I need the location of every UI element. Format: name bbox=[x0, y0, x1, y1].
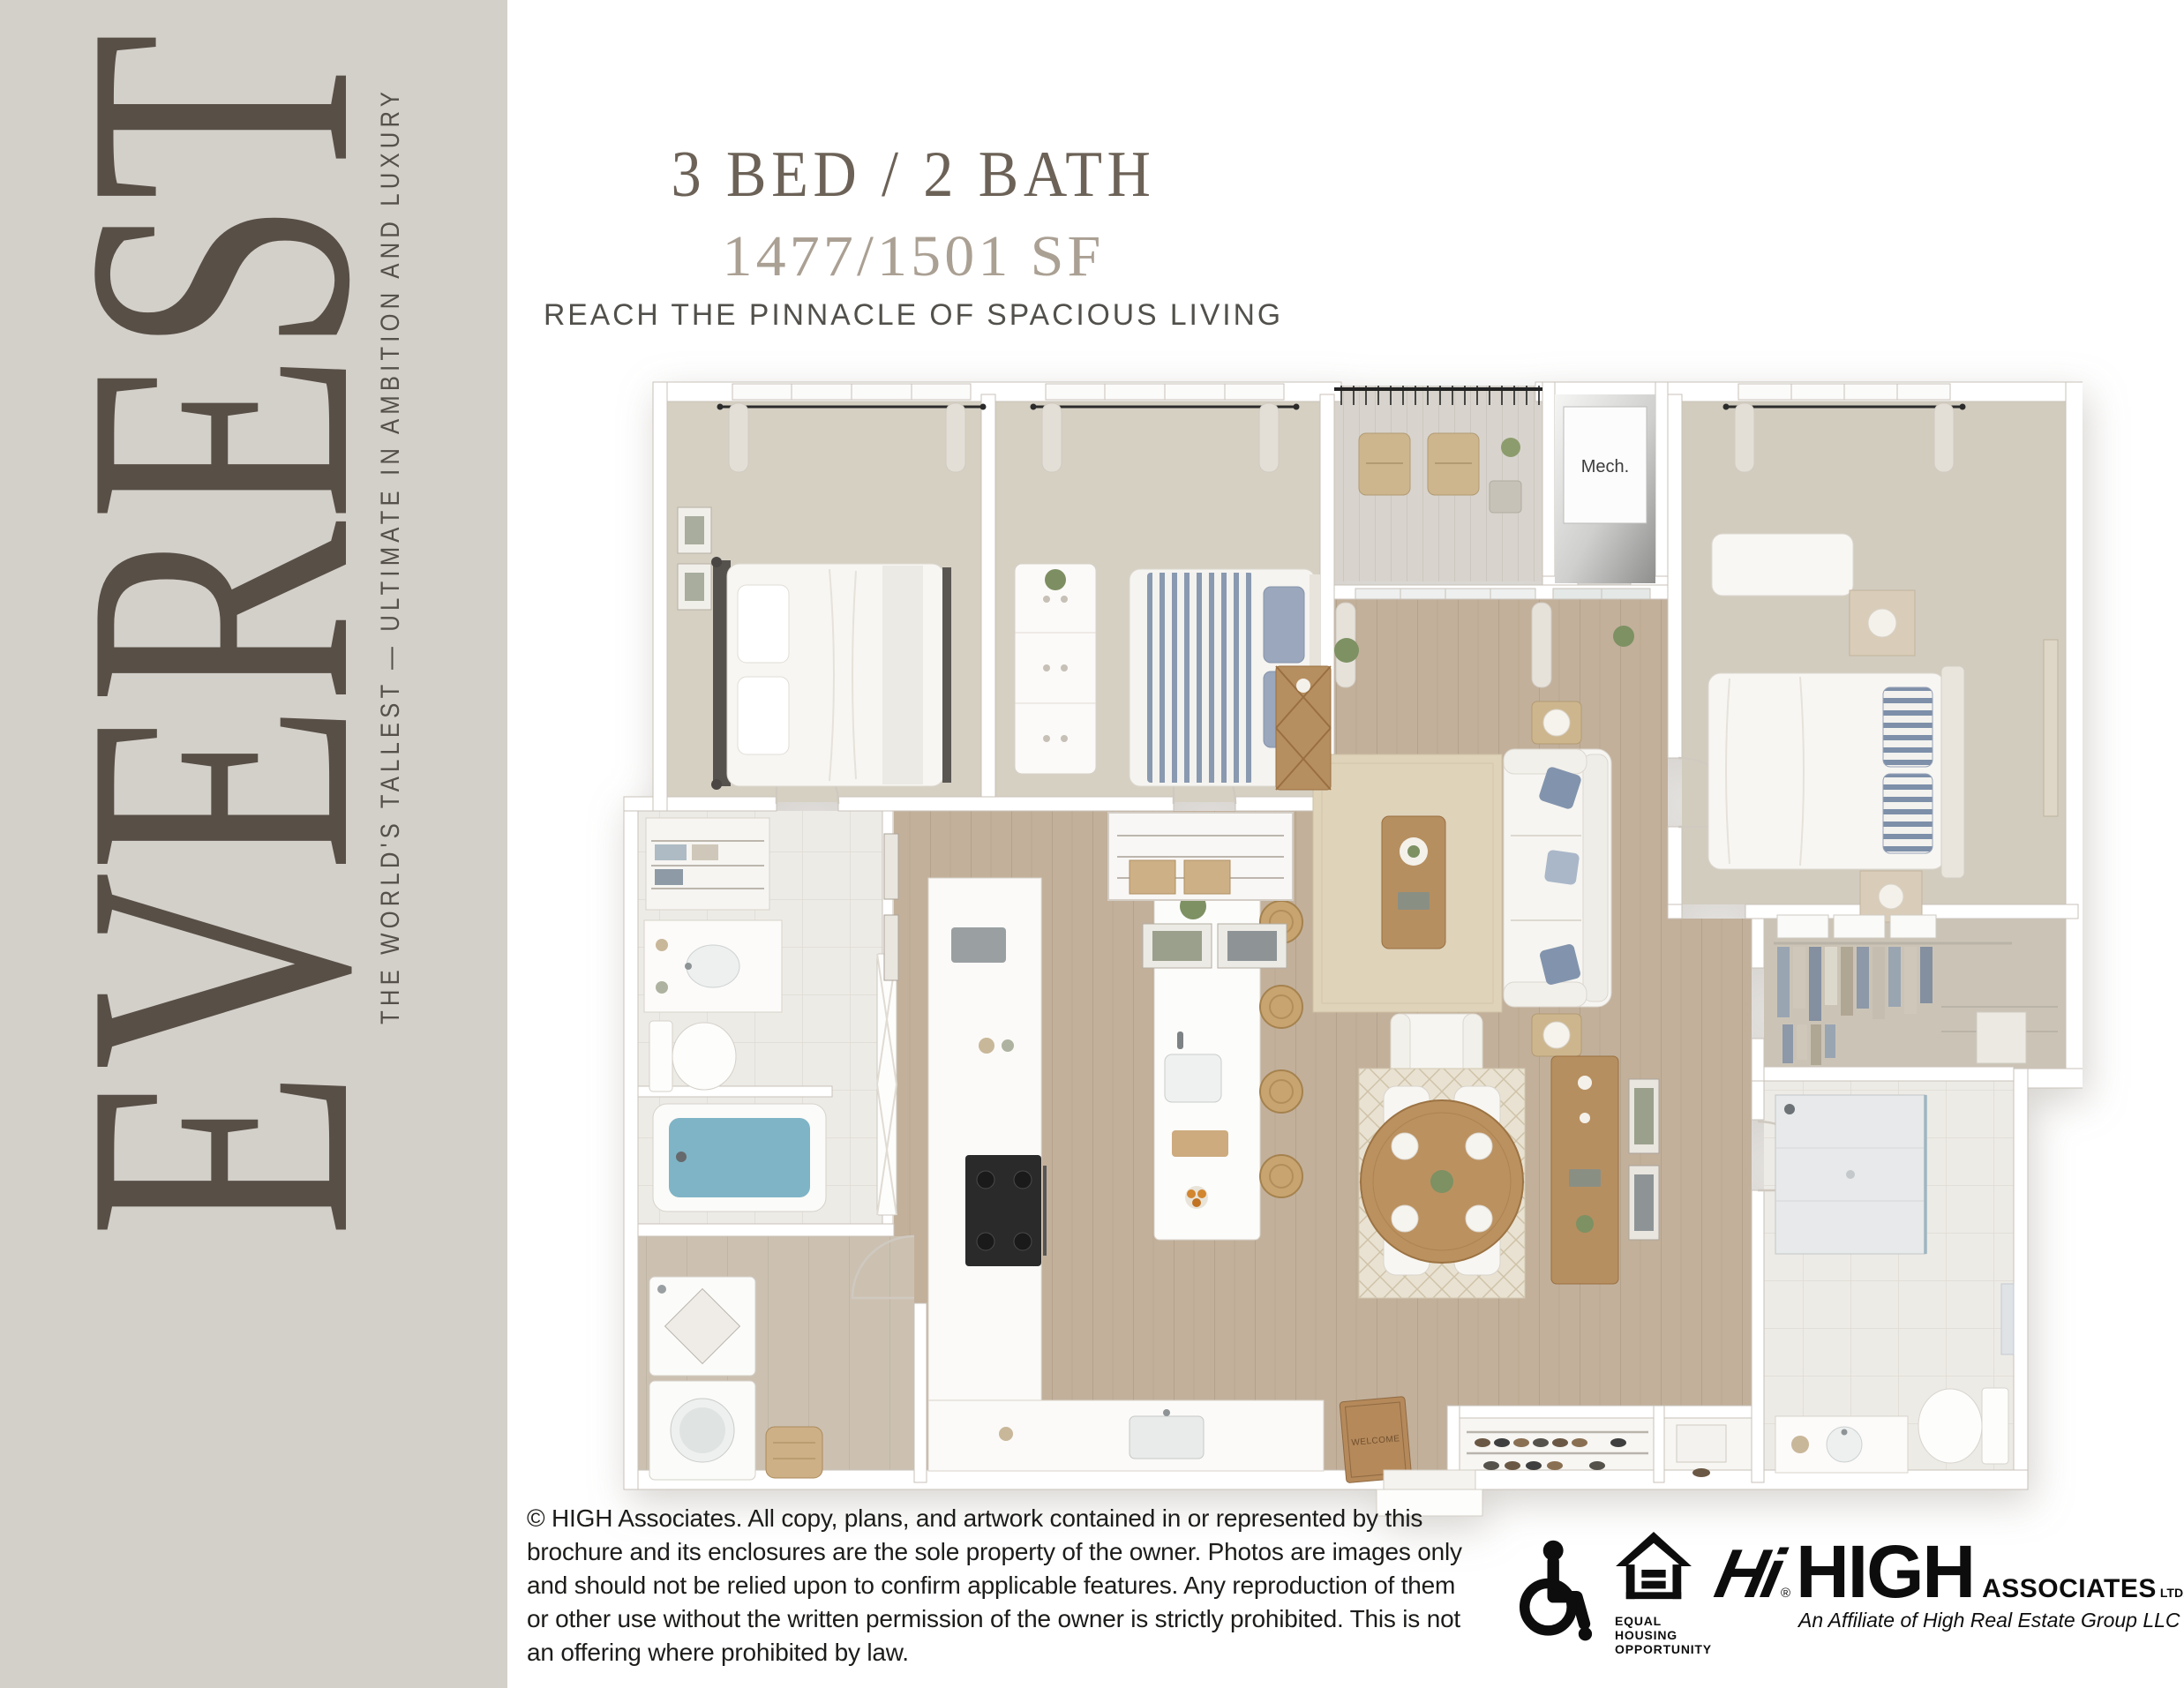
window-bench bbox=[1712, 534, 1853, 596]
shower-head bbox=[1784, 1104, 1795, 1114]
vanity bbox=[1775, 1416, 1908, 1473]
basket bbox=[1130, 860, 1175, 894]
copyright-line: and should not be relied upon to confirm… bbox=[527, 1569, 1520, 1602]
registered-mark: ® bbox=[1781, 1586, 1790, 1601]
pantry-shelves bbox=[1108, 813, 1293, 900]
counter-left bbox=[928, 878, 1045, 1407]
balcony-plant bbox=[1501, 438, 1520, 457]
hall-art bbox=[884, 915, 898, 980]
bathtub bbox=[653, 1104, 826, 1212]
sink bbox=[1130, 1416, 1204, 1459]
lamp bbox=[1543, 709, 1570, 736]
closet-dresser bbox=[1977, 1012, 2026, 1063]
copyright-line: © HIGH Associates. All copy, plans, and … bbox=[527, 1502, 1520, 1535]
wall-sign bbox=[2044, 640, 2058, 816]
sidebar-art: EVEREST THE WORLD'S TALLEST — ULTIMATE I… bbox=[0, 0, 507, 1688]
accessibility-icon bbox=[1520, 1539, 1594, 1645]
plant bbox=[1613, 626, 1634, 647]
brand-name: EVEREST bbox=[9, 34, 429, 1238]
high-associates-logo: Hi ® HIGH ASSOCIATES LTD. An Affiliate o… bbox=[1717, 1539, 2184, 1632]
throw-pillow bbox=[1544, 850, 1580, 886]
balcony-table bbox=[1490, 481, 1521, 513]
copyright-line: an offering where prohibited by law. bbox=[527, 1636, 1520, 1669]
high-name: HIGH bbox=[1796, 1539, 1974, 1606]
shower bbox=[1775, 1095, 1925, 1254]
mech-label: Mech. bbox=[1581, 457, 1629, 476]
console-table bbox=[1276, 666, 1331, 790]
storage-box bbox=[1677, 1425, 1726, 1462]
sofa bbox=[1504, 749, 1611, 1007]
high-affiliate-tagline: An Affiliate of High Real Estate Group L… bbox=[1798, 1609, 2184, 1632]
bed bbox=[1708, 666, 1964, 878]
small-appliance bbox=[951, 927, 1006, 963]
faucet bbox=[1177, 1032, 1183, 1049]
sidebar: EVEREST THE WORLD'S TALLEST — ULTIMATE I… bbox=[0, 0, 507, 1688]
laundry-basket bbox=[766, 1427, 822, 1478]
towel bbox=[2001, 1284, 2014, 1354]
equal-housing-line2: OPPORTUNITY bbox=[1615, 1642, 1712, 1656]
buffet-console bbox=[1551, 1056, 1618, 1284]
dresser bbox=[1015, 564, 1096, 774]
dryer bbox=[649, 1381, 755, 1480]
stove bbox=[965, 1155, 1045, 1266]
equal-housing-line1: EQUAL HOUSING bbox=[1615, 1614, 1712, 1642]
header-tagline: REACH THE PINNACLE OF SPACIOUS LIVING bbox=[544, 298, 1283, 332]
tub-faucet bbox=[676, 1152, 687, 1162]
basket bbox=[1184, 860, 1230, 894]
brand-tagline: THE WORLD'S TALLEST — ULTIMATE IN AMBITI… bbox=[376, 87, 405, 1024]
entry-door bbox=[1384, 1470, 1475, 1489]
lamp bbox=[1543, 1022, 1570, 1048]
hall-art bbox=[884, 834, 898, 899]
dining-table bbox=[1361, 1100, 1523, 1263]
dining bbox=[1359, 1056, 1659, 1298]
equal-housing-icon bbox=[1615, 1532, 1692, 1604]
copyright-line: brochure and its enclosures are the sole… bbox=[527, 1535, 1520, 1569]
island bbox=[1154, 866, 1260, 1240]
lamp bbox=[1868, 609, 1896, 637]
linen-shelves bbox=[646, 818, 769, 910]
high-ltd: LTD. bbox=[2160, 1586, 2184, 1600]
high-associates: ASSOCIATES bbox=[1982, 1574, 2157, 1604]
toilet bbox=[1918, 1388, 2008, 1464]
brochure-page: EVEREST THE WORLD'S TALLEST — ULTIMATE I… bbox=[0, 0, 2184, 1688]
coffee-table bbox=[1382, 816, 1445, 949]
mech-closet: Mech. bbox=[1555, 394, 1655, 583]
vanity bbox=[644, 920, 782, 1012]
header: 3 BED / 2 BATH 1477/1501 SF REACH THE PI… bbox=[516, 115, 1310, 335]
lamp bbox=[1879, 884, 1903, 909]
barn-door bbox=[877, 954, 897, 1215]
washer bbox=[649, 1277, 755, 1376]
high-glyph-icon: Hi bbox=[1711, 1542, 1786, 1604]
bed bbox=[711, 557, 951, 790]
copyright-text: © HIGH Associates. All copy, plans, and … bbox=[527, 1502, 1520, 1669]
counter-bottom bbox=[928, 1400, 1324, 1471]
page-title: 3 BED / 2 BATH bbox=[672, 139, 1156, 211]
plant bbox=[1334, 638, 1359, 663]
floor-plan: Mech. bbox=[565, 375, 2083, 1531]
copyright-line: or other use without the written permiss… bbox=[527, 1602, 1520, 1636]
plant bbox=[1045, 569, 1066, 590]
equal-housing-logo: EQUAL HOUSING OPPORTUNITY bbox=[1615, 1532, 1712, 1656]
bedroom3 bbox=[1015, 564, 1320, 786]
footer-logos: EQUAL HOUSING OPPORTUNITY Hi ® HIGH ASSO… bbox=[1513, 1527, 2184, 1688]
cutting-board bbox=[1172, 1130, 1228, 1157]
centerpiece bbox=[1430, 1170, 1453, 1193]
square-footage: 1477/1501 SF bbox=[723, 224, 1105, 289]
island-sink bbox=[1165, 1054, 1221, 1102]
toilet bbox=[649, 1021, 736, 1092]
